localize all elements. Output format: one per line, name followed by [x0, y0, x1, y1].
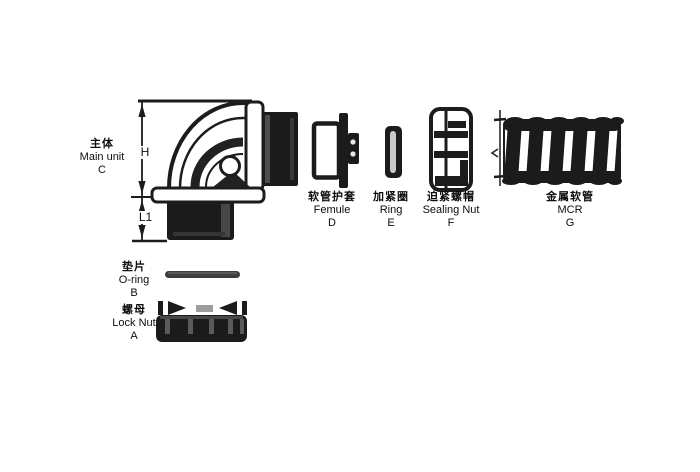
dimension-label-h: H — [137, 146, 153, 159]
label-sealing-nut-en: Sealing Nut — [405, 204, 497, 217]
label-sealing-nut: 迫紧螺帽 Sealing Nut F — [405, 191, 497, 230]
right-flange — [246, 102, 263, 190]
dimension-arrow-down — [138, 225, 145, 238]
label-o-ring-code: B — [94, 287, 174, 300]
label-conduit: 金属软管 MCR G — [525, 191, 615, 230]
diagram-canvas: 主体 Main unit C H L1 软管护套 Femule D 加紧圈 Ri… — [0, 0, 700, 472]
main-unit-drawing — [152, 102, 298, 240]
o-ring-drawing — [165, 271, 240, 278]
label-main-unit-en: Main unit — [57, 151, 147, 164]
label-lock-nut-zh: 螺母 — [94, 304, 174, 317]
label-o-ring-en: O-ring — [94, 274, 174, 287]
label-conduit-zh: 金属软管 — [525, 191, 615, 204]
label-main-unit: 主体 Main unit C — [57, 138, 147, 177]
bottom-flange — [152, 188, 264, 202]
label-o-ring-zh: 垫片 — [94, 261, 174, 274]
label-o-ring: 垫片 O-ring B — [94, 261, 174, 300]
dimension-arrow-up — [138, 104, 145, 117]
dimension-arrow-down — [138, 181, 145, 194]
ferrule-drawing — [314, 113, 359, 188]
label-lock-nut-en: Lock Nut — [94, 317, 174, 330]
label-conduit-code: G — [525, 217, 615, 230]
label-main-unit-zh: 主体 — [57, 138, 147, 151]
label-lock-nut: 螺母 Lock Nut A — [94, 304, 174, 343]
ring-drawing — [385, 126, 402, 178]
sealing-nut-drawing — [431, 109, 471, 190]
label-sealing-nut-code: F — [405, 217, 497, 230]
label-lock-nut-code: A — [94, 330, 174, 343]
dimension-label-l1: L1 — [134, 211, 157, 224]
label-sealing-nut-zh: 迫紧螺帽 — [405, 191, 497, 204]
label-conduit-en: MCR — [525, 204, 615, 217]
parts-diagram — [0, 0, 700, 472]
conduit-drawing — [492, 110, 624, 186]
elbow-corner-bore — [221, 157, 240, 176]
label-main-unit-code: C — [57, 164, 147, 177]
